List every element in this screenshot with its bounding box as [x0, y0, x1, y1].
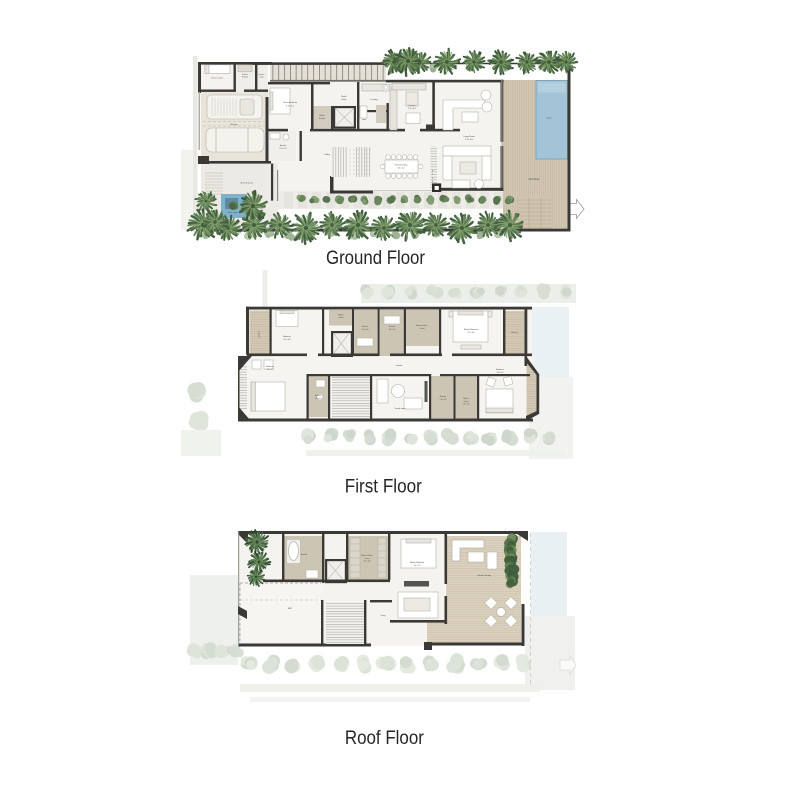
- svg-text:Roof Floor: Roof Floor: [345, 727, 424, 749]
- svg-text:5.9 x 6.0: 5.9 x 6.0: [465, 139, 474, 141]
- svg-text:Pantry: Pantry: [380, 614, 385, 617]
- svg-text:Water feature: Water feature: [228, 211, 238, 214]
- svg-text:Laundry: Laundry: [370, 99, 377, 101]
- svg-text:Ensuite: Ensuite: [362, 325, 368, 328]
- svg-text:5.3 x 5.2: 5.3 x 5.2: [397, 168, 404, 170]
- svg-text:Ensuite: Ensuite: [280, 144, 286, 147]
- svg-text:closet: closet: [420, 327, 425, 330]
- svg-text:Family room: Family room: [395, 407, 406, 410]
- svg-text:Living Room: Living Room: [463, 136, 475, 138]
- svg-text:Maid's: Maid's: [341, 96, 346, 98]
- svg-text:Ensuite: Ensuite: [389, 325, 395, 328]
- svg-text:First Floor: First Floor: [345, 475, 422, 497]
- svg-text:5.0 x 7.6: 5.0 x 7.6: [414, 565, 421, 567]
- svg-text:1.6 x 4.0: 1.6 x 4.0: [362, 329, 369, 331]
- svg-text:entry: entry: [260, 75, 264, 78]
- svg-text:closet: closet: [339, 316, 344, 319]
- svg-text:Lobby: Lobby: [324, 154, 329, 156]
- svg-text:Ensuite: Ensuite: [242, 75, 248, 78]
- svg-text:Master walk in: Master walk in: [361, 554, 372, 557]
- svg-text:Master Bedroom: Master Bedroom: [410, 561, 424, 564]
- svg-text:3.5 x 4.0: 3.5 x 4.0: [408, 108, 417, 110]
- svg-text:1.8 x 3.6: 1.8 x 3.6: [440, 399, 447, 401]
- svg-text:Kitchen: Kitchen: [409, 104, 416, 107]
- svg-text:3.5 x 4.5: 3.5 x 4.5: [286, 105, 295, 107]
- svg-text:Walk in: Walk in: [463, 398, 469, 400]
- svg-text:Pool: Pool: [547, 118, 552, 120]
- svg-text:Master Bedroom: Master Bedroom: [464, 328, 478, 331]
- svg-text:Bedroom: Bedroom: [496, 368, 504, 371]
- svg-text:Master walk in: Master walk in: [416, 324, 427, 327]
- svg-text:1.8 x 4.5: 1.8 x 4.5: [389, 329, 396, 331]
- svg-text:Bedroom: Bedroom: [283, 335, 291, 338]
- svg-text:Corridor: Corridor: [396, 364, 403, 367]
- svg-text:closet: closet: [365, 557, 370, 560]
- svg-text:Ensuite: Ensuite: [301, 553, 307, 556]
- svg-text:Garage: Garage: [230, 123, 238, 126]
- svg-text:Ensuite: Ensuite: [319, 117, 325, 120]
- svg-text:Formal Dining: Formal Dining: [395, 165, 407, 167]
- svg-text:Maid's: Maid's: [319, 115, 324, 117]
- svg-text:Driver's room: Driver's room: [211, 78, 223, 80]
- svg-text:1.3 x 3.6: 1.3 x 3.6: [315, 398, 322, 400]
- svg-text:Ground Floor: Ground Floor: [326, 247, 425, 269]
- svg-text:4.6 x 5.2: 4.6 x 5.2: [267, 369, 274, 371]
- svg-text:Guest Bedroom: Guest Bedroom: [283, 101, 297, 104]
- svg-text:Bedroom: Bedroom: [266, 365, 274, 368]
- svg-text:4.9 x 4.0: 4.9 x 4.0: [284, 339, 291, 341]
- svg-text:Ensuite: Ensuite: [440, 395, 446, 398]
- svg-text:2.5 x 1.5: 2.5 x 1.5: [279, 148, 286, 150]
- svg-text:Pool Deck: Pool Deck: [529, 179, 540, 181]
- svg-text:Room: Room: [341, 99, 346, 101]
- svg-text:Outside Seating: Outside Seating: [477, 574, 491, 577]
- svg-text:1.8 x 3.6: 1.8 x 3.6: [463, 404, 470, 406]
- svg-text:Balcony: Balcony: [511, 332, 517, 334]
- svg-text:Walk in: Walk in: [338, 315, 344, 317]
- svg-text:MEP: MEP: [288, 608, 293, 610]
- svg-text:5.2 x 4.0: 5.2 x 4.0: [468, 332, 475, 334]
- svg-text:closet: closet: [464, 400, 469, 403]
- svg-text:Ensuite: Ensuite: [315, 394, 321, 397]
- svg-text:3.1 x 4.0: 3.1 x 4.0: [364, 561, 371, 563]
- svg-text:Main Entrance: Main Entrance: [241, 182, 255, 185]
- svg-text:Balcony: Balcony: [259, 331, 261, 337]
- svg-text:3.8 x 4.9: 3.8 x 4.9: [497, 372, 504, 374]
